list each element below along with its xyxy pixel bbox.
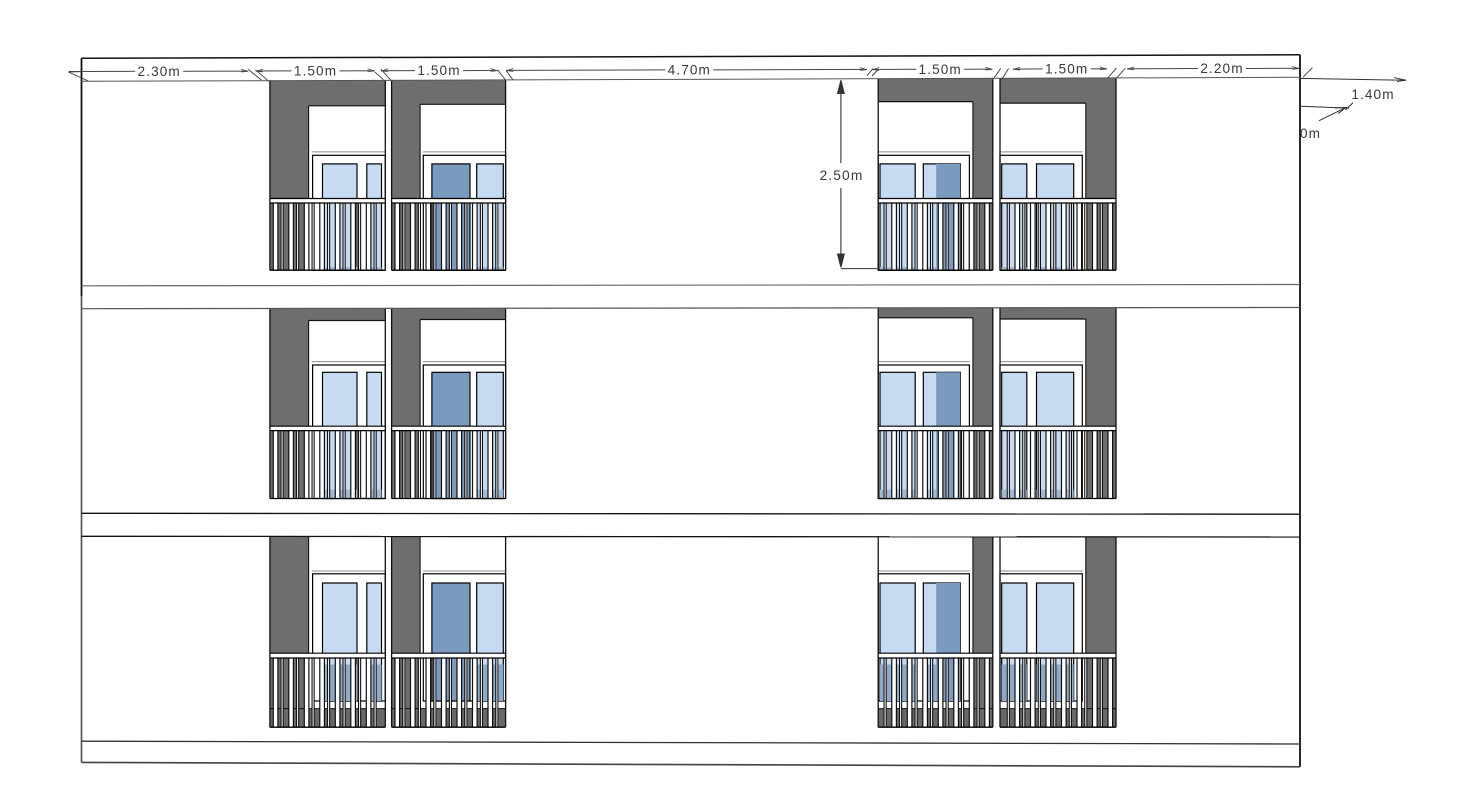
- svg-text:0m: 0m: [1300, 126, 1321, 141]
- svg-text:2.50m: 2.50m: [820, 168, 864, 183]
- svg-text:4.70m: 4.70m: [668, 63, 711, 78]
- svg-text:1.50m: 1.50m: [919, 62, 962, 77]
- svg-text:2.20m: 2.20m: [1200, 61, 1243, 76]
- svg-text:1.50m: 1.50m: [294, 64, 337, 79]
- svg-text:1.50m: 1.50m: [1045, 62, 1088, 77]
- svg-text:1.50m: 1.50m: [417, 63, 460, 78]
- svg-text:1.40m: 1.40m: [1351, 87, 1394, 102]
- svg-text:2.30m: 2.30m: [138, 64, 181, 79]
